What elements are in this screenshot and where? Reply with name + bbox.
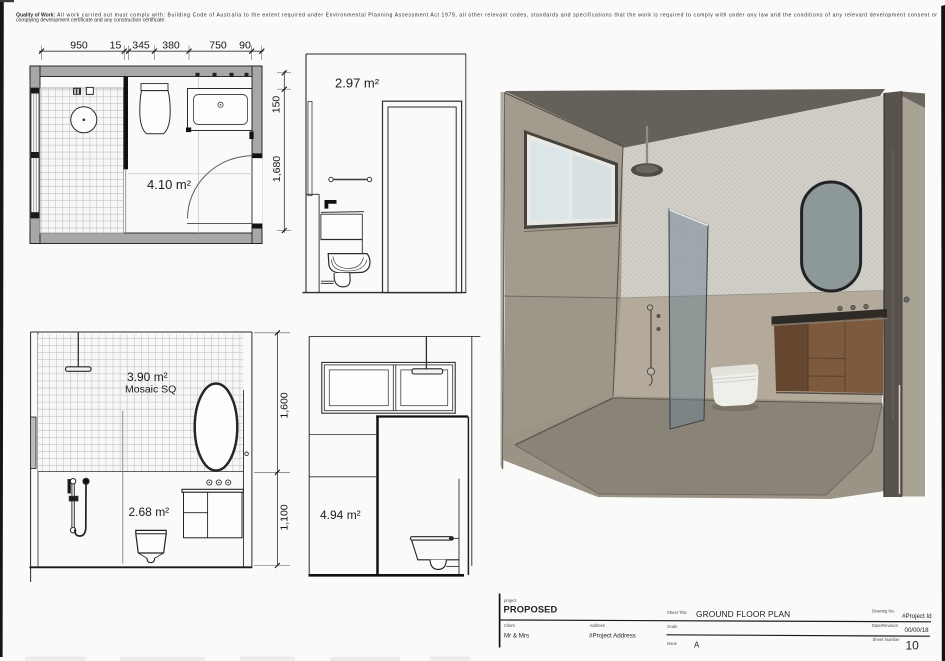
svg-text:1,680: 1,680 bbox=[271, 156, 283, 182]
svg-text:00/00/18: 00/00/18 bbox=[905, 627, 930, 634]
svg-text:10: 10 bbox=[906, 638, 920, 652]
svg-text:950: 950 bbox=[70, 39, 88, 51]
svg-text:345: 345 bbox=[132, 39, 150, 51]
svg-text:All work carried out must comp: All work carried out must comply with: B… bbox=[57, 12, 937, 18]
svg-text:750: 750 bbox=[209, 39, 227, 51]
svg-text:#Project Address: #Project Address bbox=[589, 632, 636, 639]
svg-text:Sheet Title: Sheet Title bbox=[667, 610, 687, 615]
svg-text:4.94 m²: 4.94 m² bbox=[320, 508, 361, 522]
svg-text:Mosaic SQ: Mosaic SQ bbox=[125, 384, 176, 396]
svg-text:2.97 m²: 2.97 m² bbox=[335, 76, 380, 91]
svg-text:90: 90 bbox=[239, 39, 251, 51]
svg-text:3.90 m²: 3.90 m² bbox=[127, 370, 168, 384]
svg-text:Client: Client bbox=[504, 623, 516, 628]
svg-text:PROPOSED: PROPOSED bbox=[504, 604, 558, 614]
svg-text:1,600: 1,600 bbox=[279, 392, 291, 418]
svg-text:#Project Id: #Project Id bbox=[902, 613, 932, 620]
svg-text:GROUND FLOOR PLAN: GROUND FLOOR PLAN bbox=[696, 609, 790, 619]
svg-text:380: 380 bbox=[162, 39, 180, 51]
svg-text:150: 150 bbox=[271, 96, 283, 114]
svg-text:Issue: Issue bbox=[667, 641, 678, 646]
svg-text:Address: Address bbox=[590, 623, 605, 628]
svg-text:15: 15 bbox=[110, 39, 122, 51]
svg-text:Date/Revision: Date/Revision bbox=[872, 623, 899, 628]
svg-text:project: project bbox=[504, 598, 517, 603]
svg-text:Drawing No.: Drawing No. bbox=[872, 609, 895, 614]
svg-text:Mr & Mrs: Mr & Mrs bbox=[504, 632, 529, 639]
svg-text:complying development certific: complying development certificate and an… bbox=[16, 18, 166, 24]
svg-text:Sheet Number: Sheet Number bbox=[873, 637, 901, 642]
svg-text:A: A bbox=[694, 640, 700, 649]
svg-text:1,100: 1,100 bbox=[279, 504, 291, 530]
svg-text:2.68 m²: 2.68 m² bbox=[129, 505, 170, 519]
svg-text:4.10 m²: 4.10 m² bbox=[147, 177, 192, 192]
svg-text:Scale: Scale bbox=[667, 624, 678, 629]
